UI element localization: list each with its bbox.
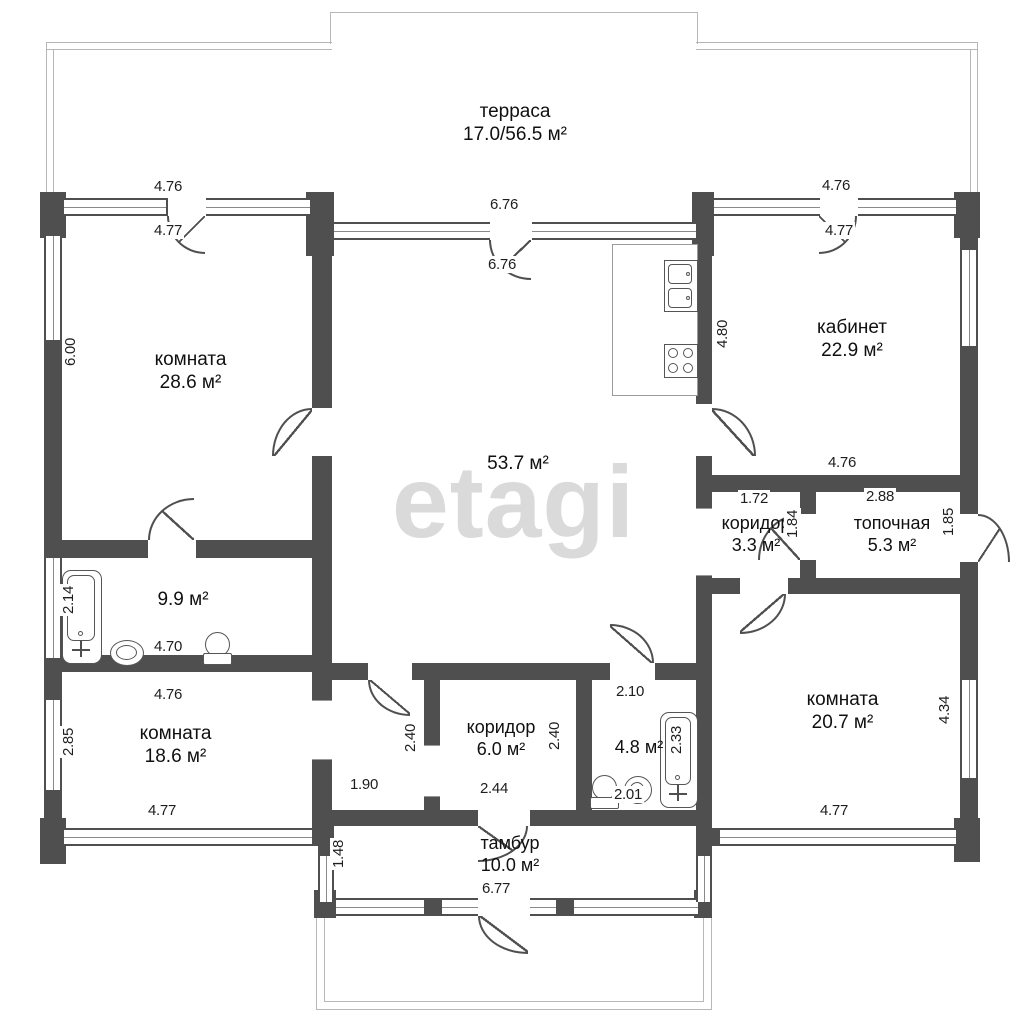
room-name: комната bbox=[118, 348, 263, 371]
door-opening bbox=[820, 198, 858, 216]
dim-top-right-in: 4.77 bbox=[823, 222, 855, 239]
wall-pier bbox=[424, 898, 442, 916]
room-area: 17.0/56.5 м² bbox=[405, 123, 625, 146]
dim-top-center-out: 6.76 bbox=[488, 196, 520, 213]
room-area: 10.0 м² bbox=[448, 854, 572, 876]
wall-pier bbox=[40, 818, 66, 864]
dim-bath-bottom-tub: 2.33 bbox=[668, 724, 685, 756]
dim-cabinet-left: 4.80 bbox=[714, 318, 731, 350]
window bbox=[336, 898, 478, 916]
dim-bath-top-tub: 2.14 bbox=[60, 584, 77, 616]
room-label-room-bl: комната 18.6 м² bbox=[103, 722, 248, 768]
room-label-room-tl: комната 28.6 м² bbox=[118, 348, 263, 394]
kitchen-sink-icon bbox=[664, 260, 698, 312]
room-label-tambour: тамбур 10.0 м² bbox=[448, 832, 572, 876]
room-name: комната bbox=[103, 722, 248, 745]
room-label-cabinet: кабинет 22.9 м² bbox=[782, 316, 922, 362]
window bbox=[696, 856, 712, 902]
terrace-outline-right-top bbox=[696, 42, 978, 50]
dim-tambour-bottom: 6.77 bbox=[480, 880, 512, 897]
room-area: 6.0 м² bbox=[442, 738, 560, 760]
stove-icon bbox=[664, 344, 698, 378]
door-swing bbox=[148, 498, 194, 540]
room-area: 22.9 м² bbox=[782, 339, 922, 362]
dim-room-bl-top: 4.76 bbox=[152, 686, 184, 703]
dim-hall-small-top: 1.72 bbox=[738, 490, 770, 507]
door-opening bbox=[312, 408, 332, 456]
terrace-outline-left-top bbox=[46, 42, 332, 50]
dim-top-center-in: 6.76 bbox=[486, 256, 518, 273]
door-swing bbox=[712, 408, 756, 456]
dim-hall-small-right: 1.84 bbox=[784, 508, 801, 540]
dim-room-bl-bottom: 4.77 bbox=[146, 802, 178, 819]
dim-boiler-top: 2.88 bbox=[864, 488, 896, 505]
window bbox=[206, 198, 310, 216]
room-label-bath-top: 9.9 м² bbox=[128, 588, 238, 611]
terrace-outline-bump bbox=[330, 12, 698, 44]
room-area: 53.7 м² bbox=[452, 452, 584, 475]
room-area: 5.3 м² bbox=[830, 534, 954, 556]
dim-bath-bottom-top: 2.10 bbox=[614, 683, 646, 700]
door-opening bbox=[696, 404, 712, 456]
door-swing bbox=[368, 680, 410, 716]
room-area: 20.7 м² bbox=[770, 711, 915, 734]
window bbox=[858, 198, 956, 216]
dim-boiler-right: 1.85 bbox=[940, 506, 957, 538]
window bbox=[960, 680, 978, 778]
room-label-terrace: терраса 17.0/56.5 м² bbox=[405, 100, 625, 146]
door-swing bbox=[978, 514, 1010, 562]
dim-top-left-in: 4.77 bbox=[152, 222, 184, 239]
sink-icon bbox=[110, 640, 144, 666]
window bbox=[64, 198, 166, 216]
dim-bath-bottom-width: 2.01 bbox=[612, 786, 644, 803]
dim-room-br-bottom: 4.77 bbox=[818, 802, 850, 819]
dim-hall-height: 2.40 bbox=[402, 722, 419, 754]
terrace-outline-right-side bbox=[970, 50, 978, 200]
door-swing bbox=[740, 594, 786, 634]
dim-corridor-height: 2.40 bbox=[546, 720, 563, 752]
room-name: терраса bbox=[405, 100, 625, 123]
wall-pier bbox=[40, 192, 66, 238]
wall-pier bbox=[954, 192, 980, 238]
window bbox=[44, 236, 62, 340]
door-opening bbox=[490, 222, 532, 240]
door-opening bbox=[168, 198, 206, 216]
window bbox=[334, 222, 490, 240]
window bbox=[64, 828, 312, 846]
door-opening bbox=[478, 810, 530, 826]
room-area: 18.6 м² bbox=[103, 745, 248, 768]
window bbox=[720, 828, 956, 846]
wall-pier bbox=[954, 818, 980, 862]
window bbox=[714, 198, 820, 216]
terrace-outline-left-side bbox=[46, 50, 54, 202]
door-swing bbox=[272, 408, 312, 456]
dim-top-left-out: 4.76 bbox=[152, 178, 184, 195]
door-swing bbox=[610, 624, 654, 663]
dim-hall-width: 1.90 bbox=[348, 776, 380, 793]
room-name: тамбур bbox=[448, 832, 572, 854]
room-name: комната bbox=[770, 688, 915, 711]
room-name: кабинет bbox=[782, 316, 922, 339]
room-name: топочная bbox=[830, 512, 954, 534]
dim-room-br-right: 4.34 bbox=[936, 694, 953, 726]
door-opening bbox=[368, 663, 412, 680]
room-label-living: 53.7 м² bbox=[452, 452, 584, 475]
door-opening bbox=[148, 540, 196, 558]
wall-opening bbox=[312, 700, 332, 760]
door-opening bbox=[740, 578, 788, 594]
room-name: коридор bbox=[442, 716, 560, 738]
window bbox=[960, 250, 978, 346]
dim-room-bl-left: 2.85 bbox=[60, 726, 77, 758]
wall-pier bbox=[306, 192, 334, 256]
dim-top-right-out: 4.76 bbox=[820, 177, 852, 194]
floor-plan: etagi терраса 17.0/56.5 м² комната 28.6 … bbox=[0, 0, 1024, 1024]
room-label-corridor: коридор 6.0 м² bbox=[442, 716, 560, 760]
dim-bath-top-width: 4.70 bbox=[152, 638, 184, 655]
dim-cabinet-bottom: 4.76 bbox=[826, 454, 858, 471]
door-opening bbox=[960, 514, 978, 562]
wall-opening bbox=[424, 745, 440, 797]
door-opening bbox=[478, 898, 530, 916]
toilet-tank bbox=[203, 653, 232, 665]
room-label-boiler: топочная 5.3 м² bbox=[830, 512, 954, 556]
wall bbox=[576, 680, 592, 816]
dim-corridor-width: 2.44 bbox=[478, 780, 510, 797]
door-opening bbox=[610, 663, 655, 680]
dim-tambour-left: 1.48 bbox=[330, 838, 347, 870]
room-area: 9.9 м² bbox=[128, 588, 238, 611]
dim-left-room-height: 6.00 bbox=[62, 336, 79, 368]
wall-pier bbox=[556, 898, 574, 916]
room-area: 28.6 м² bbox=[118, 371, 263, 394]
room-label-room-br: комната 20.7 м² bbox=[770, 688, 915, 734]
window bbox=[532, 222, 696, 240]
